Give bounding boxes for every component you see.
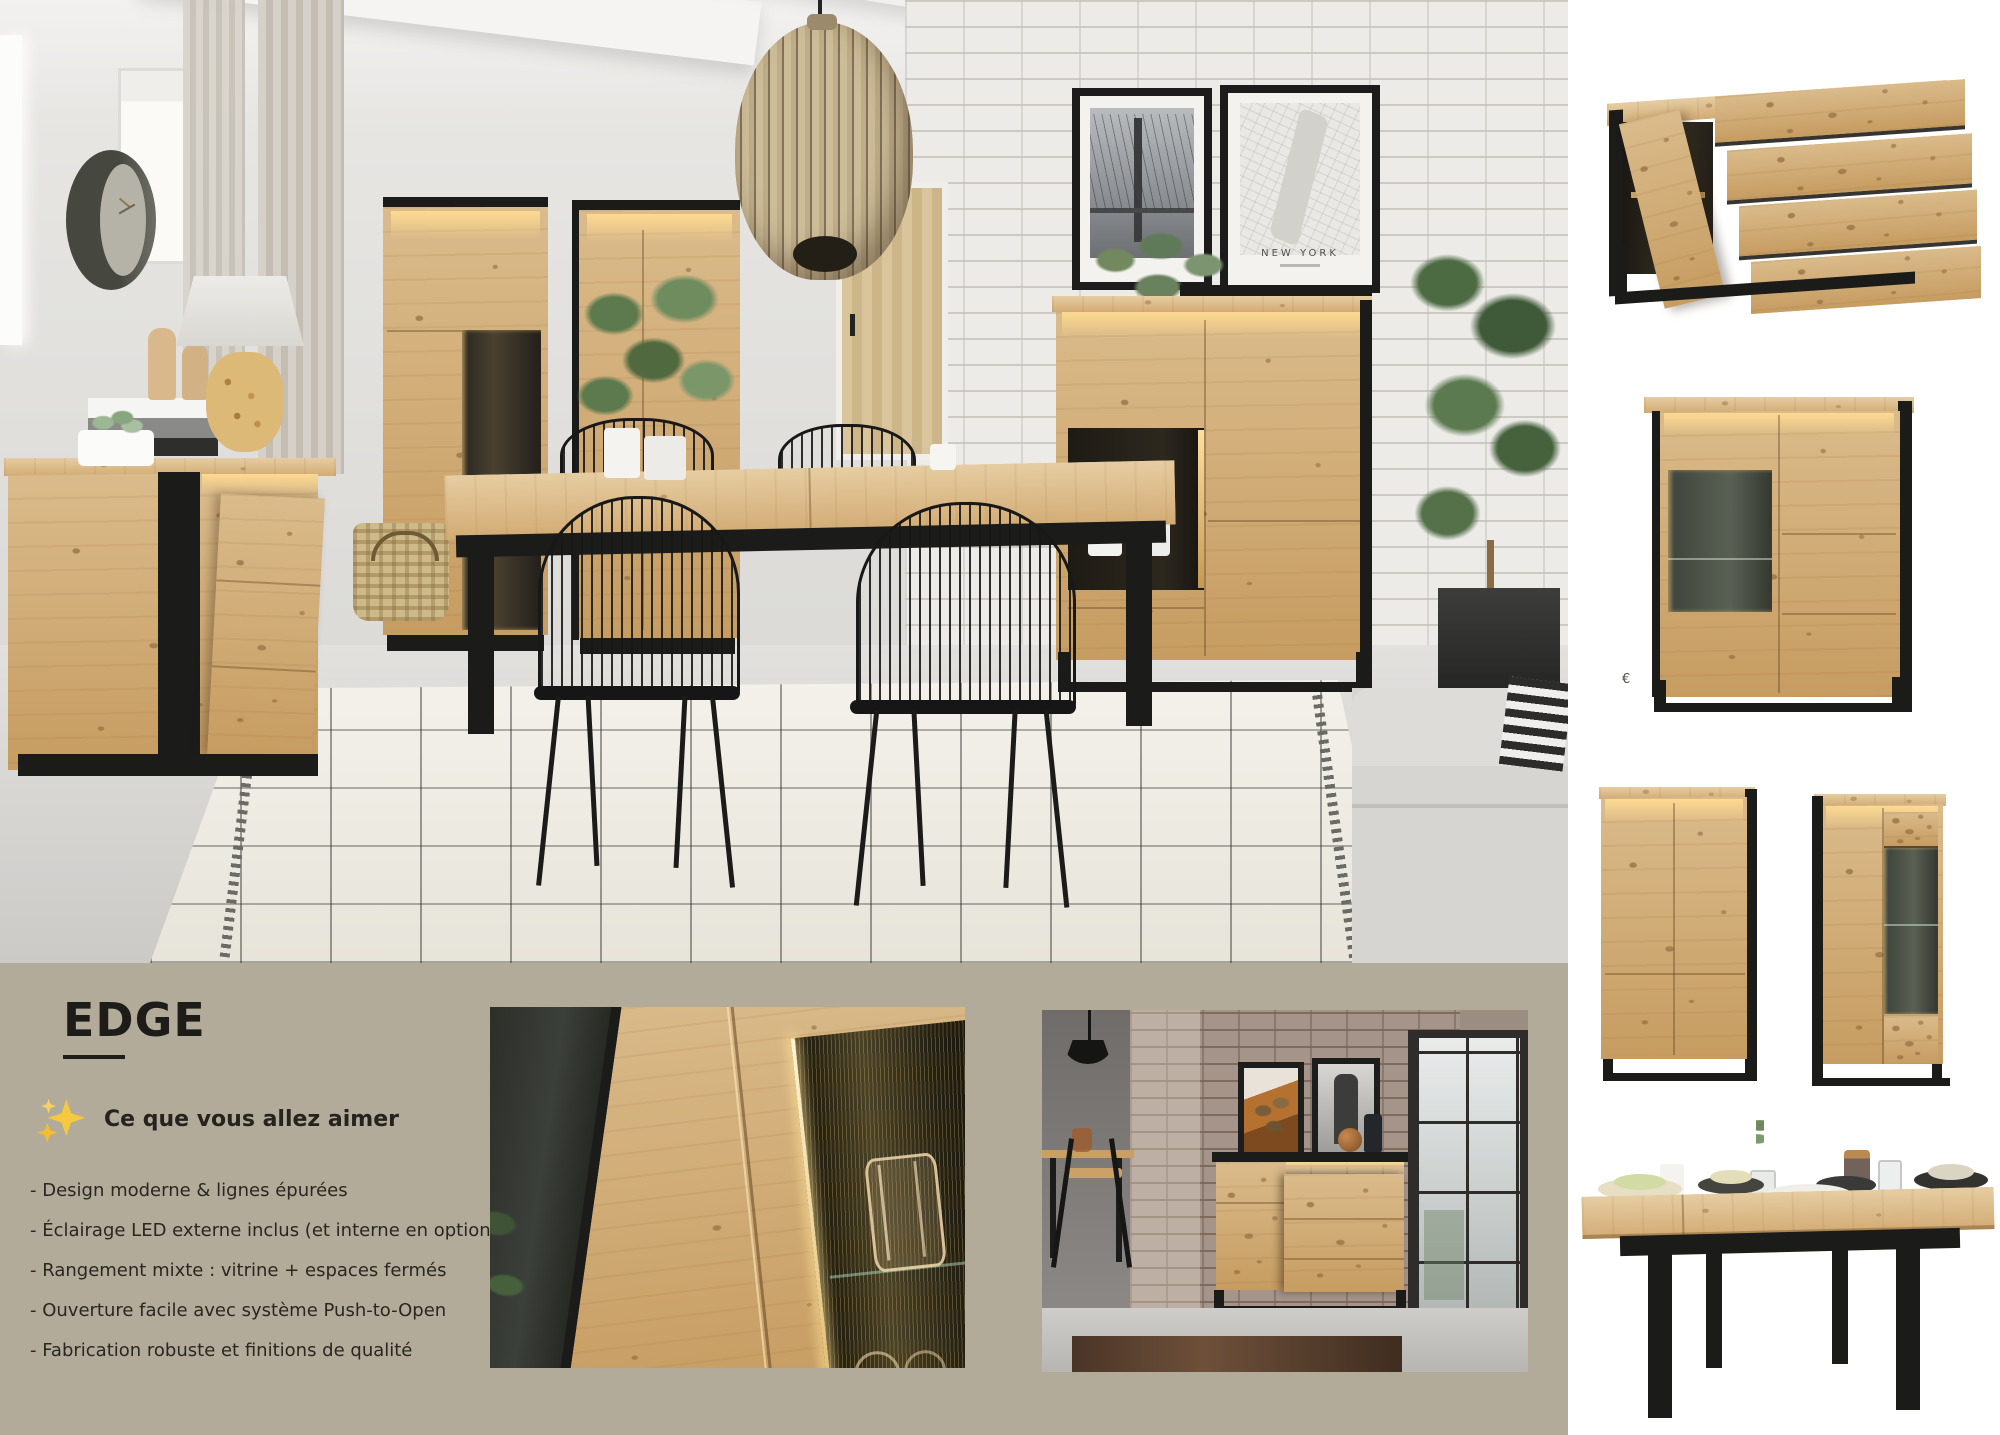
- lamp-shade: [176, 276, 304, 346]
- door-seam: [1284, 1218, 1404, 1220]
- door-seam: [1284, 1258, 1404, 1260]
- product-display-cabinet-render: [1640, 345, 1925, 712]
- product-extendable-table-render: [1578, 1112, 1998, 1425]
- basket-handle: [371, 531, 439, 561]
- chair-leg: [674, 696, 688, 868]
- drawer-open: [1739, 190, 1977, 257]
- succulent: [84, 404, 148, 438]
- drawer-open: [1715, 79, 1965, 142]
- door-seam: [387, 330, 462, 332]
- table-leg: [1648, 1250, 1672, 1418]
- dark-rug: [1072, 1336, 1402, 1372]
- pendant-cap: [807, 14, 837, 30]
- wood-detail-photo: [490, 1007, 965, 1368]
- poster-mat: NEW YORK: [1228, 93, 1372, 285]
- chair-leg: [536, 696, 561, 885]
- chair-leg: [1044, 710, 1070, 907]
- drawer-open: [1727, 133, 1972, 200]
- table-leg-back: [1706, 1248, 1722, 1368]
- cabinet-base: [387, 635, 544, 651]
- highboard-top: [1052, 296, 1372, 312]
- table-plant-foliage: [548, 258, 768, 444]
- chair-leg: [586, 696, 600, 866]
- product-sideboard-render: [1607, 30, 1972, 306]
- glass-shelf: [1884, 924, 1938, 926]
- glass-decor: [902, 1348, 948, 1368]
- table-leg-back: [1832, 1246, 1848, 1364]
- wire-chair: [528, 496, 746, 894]
- amber-jug: [1072, 1128, 1092, 1152]
- vitrine-top-panel: [1884, 812, 1938, 846]
- bowl: [1614, 1174, 1666, 1190]
- glass-hurricane-vase: [864, 1152, 948, 1273]
- vase-highlight: [913, 1161, 926, 1257]
- led-strip: [1062, 312, 1362, 338]
- throw-blanket: [1499, 676, 1568, 771]
- door-seam: [1782, 613, 1896, 615]
- right-door-overlap: [1284, 1174, 1404, 1292]
- led-strip: [391, 211, 540, 239]
- product-tall-cabinet-render: [1597, 763, 1763, 1088]
- map-art: [1240, 103, 1360, 255]
- door-seam: [1208, 520, 1364, 522]
- chair-leg: [710, 696, 735, 887]
- wood-mannequin: [148, 328, 176, 400]
- plant-sprig: [1756, 1120, 1764, 1174]
- glass-shelf: [1668, 558, 1772, 560]
- console-base: [18, 754, 318, 776]
- door-seam: [1782, 533, 1896, 535]
- door-seam: [1673, 803, 1675, 1055]
- chair-back: [538, 496, 740, 698]
- chair-seat: [534, 686, 740, 700]
- door-handle: [850, 314, 855, 336]
- chair-leg: [911, 710, 925, 886]
- table-leg: [468, 548, 494, 734]
- manhattan-shape: [1269, 107, 1329, 246]
- poster-title: NEW YORK: [1228, 248, 1372, 259]
- cork-lamp-base: [206, 352, 284, 452]
- console-sideboard: [4, 456, 336, 790]
- pendant-lamp: [735, 22, 913, 280]
- sled-leg: [1615, 244, 1627, 295]
- pendant-cord: [1088, 1010, 1091, 1042]
- benefits-heading: Ce que vous allez aimer: [104, 1107, 399, 1132]
- door-seam: [1216, 1202, 1286, 1204]
- sofa: [1352, 688, 1568, 963]
- door-seam: [1605, 973, 1745, 975]
- product-presentation-board: NEW YORK: [0, 0, 2000, 1435]
- copper-sphere: [1338, 1128, 1362, 1152]
- door-seam: [1882, 808, 1884, 1064]
- glass-decor: [852, 1349, 903, 1368]
- door-seam: [1778, 415, 1780, 693]
- plant-reflection: [490, 1159, 558, 1368]
- door-seam: [1204, 320, 1206, 656]
- console-drawer-front: [207, 493, 325, 760]
- bridge-cables: [1090, 114, 1194, 210]
- left-frame: [1652, 411, 1660, 697]
- table-seam: [808, 468, 811, 532]
- sofa-seam: [1352, 804, 1568, 808]
- chair-leg: [854, 710, 879, 905]
- dark-vase: [1364, 1114, 1382, 1152]
- loft-window: [1408, 1030, 1528, 1342]
- title-underline: [63, 1055, 125, 1059]
- sled-bar: [1654, 703, 1912, 712]
- wicker-basket: [353, 523, 449, 621]
- chair-back: [856, 502, 1076, 712]
- left-door: [1216, 1162, 1286, 1290]
- brick-pillar-highlight: [1130, 1010, 1200, 1320]
- clock-face: [100, 164, 146, 276]
- highboard-side-frame: [1360, 300, 1372, 668]
- chair-seat: [850, 700, 1076, 714]
- price-symbol: €: [1622, 672, 1630, 687]
- sideboard-top: [1212, 1152, 1408, 1162]
- led-strip: [202, 474, 318, 494]
- panel-seam: [727, 1007, 775, 1368]
- left-frame: [1812, 796, 1823, 1086]
- ficus-foliage: [1396, 218, 1568, 578]
- vitrine-bottom-panel: [1884, 1016, 1938, 1064]
- right-frame: [1898, 401, 1912, 701]
- wood-mannequin: [182, 344, 208, 400]
- new-york-poster: NEW YORK: [1220, 85, 1380, 293]
- wire-chair: [842, 502, 1086, 910]
- vitrine-glass: [1884, 848, 1938, 1014]
- dry-branch-decor: [1250, 1090, 1294, 1142]
- table-leg: [1896, 1246, 1920, 1410]
- sparkles-icon: [36, 1094, 88, 1146]
- vitrine-glass: [1668, 470, 1772, 612]
- console-corner-frame: [158, 472, 200, 762]
- grid-rug: [150, 680, 1400, 963]
- drawer-seam: [212, 665, 316, 672]
- drawer-seam: [216, 579, 320, 586]
- vase-highlight: [877, 1165, 890, 1261]
- table-leg: [1126, 540, 1152, 726]
- loft-sideboard: [1212, 1152, 1408, 1314]
- led-strip: [587, 214, 732, 242]
- chair-leg: [1003, 710, 1017, 888]
- white-cup: [930, 444, 956, 470]
- poster-subtitle-line: [1280, 264, 1320, 267]
- window: [0, 35, 22, 345]
- sideboard-lifestyle-photo: [1042, 1010, 1528, 1372]
- sled-bar: [1058, 682, 1372, 692]
- extension-seam: [1682, 1195, 1685, 1237]
- window-greenery: [1424, 1210, 1464, 1300]
- bowl: [1710, 1170, 1752, 1184]
- pendant-opening: [793, 236, 857, 272]
- plate: [1928, 1164, 1974, 1180]
- sled-bar: [1814, 1078, 1950, 1086]
- wall-clock: [66, 150, 156, 290]
- product-tall-vitrine-render: [1812, 772, 1952, 1092]
- main-lifestyle-photo: NEW YORK: [0, 0, 1568, 963]
- sled-bar: [1603, 1073, 1757, 1081]
